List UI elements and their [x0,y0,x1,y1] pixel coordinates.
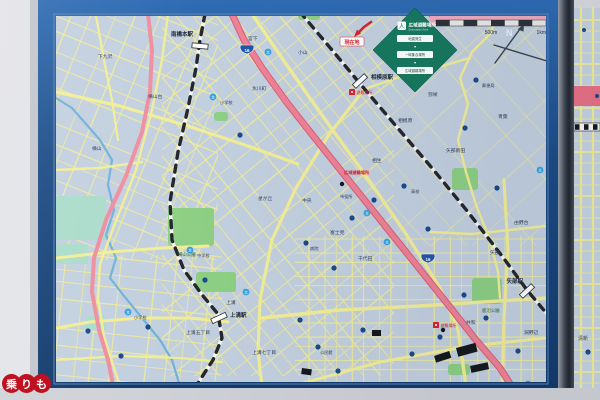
svg-text:上溝: 上溝 [226,299,236,306]
svg-text:横山公園: 横山公園 [178,251,196,258]
legend-step-2: 一時集合場所 [405,52,426,57]
legend-step-1: 地震発生 [408,36,422,41]
svg-text:文: 文 [126,309,130,314]
side-panel-district-label: 清新 [578,335,588,342]
svg-text:氷川町: 氷川町 [252,85,267,92]
you-are-here-label: 現在地 [344,39,359,46]
signboard-photo: 相模原駅矢部駅南橋本駅上溝駅1616文文文文文文文文文下九沢宮下小山氷川町横山台… [0,0,600,400]
svg-text:病院: 病院 [310,245,319,252]
svg-text:星が丘: 星が丘 [258,195,273,202]
svg-text:富士見: 富士見 [330,229,345,236]
svg-text:千代田: 千代田 [358,255,373,262]
legend-title: 広域避難場所 [409,22,437,29]
legend-subtitle: Evacuation Area [409,28,429,32]
svg-text:市役所: 市役所 [340,193,353,200]
svg-text:高校: 高校 [411,188,420,195]
svg-text:矢部新田: 矢部新田 [446,147,465,154]
evacuation-legend-diamond: 人 広域避難場所 Evacuation Area 地震発生 ▼ 一時集合場所 ▼… [373,8,457,92]
svg-text:避難場所: 避難場所 [357,89,373,95]
generated-map-layers: 相模原駅矢部駅南橋本駅上溝駅1616文文文文文文文文文下九沢宮下小山氷川町横山台… [0,0,600,400]
map-content: 相模原駅矢部駅南橋本駅上溝駅1616文文文文文文文文文下九沢宮下小山氷川町横山台… [0,0,600,400]
svg-text:公民館: 公民館 [320,349,333,356]
svg-text:青葉: 青葉 [498,113,508,120]
svg-text:矢部駅: 矢部駅 [506,277,523,285]
svg-text:鹿沼公園: 鹿沼公園 [482,307,500,314]
board-edge-gap [558,0,574,400]
svg-text:横山: 横山 [92,145,102,152]
svg-text:中学校: 中学校 [197,252,210,259]
svg-text:由野台: 由野台 [514,219,529,226]
svg-text:文: 文 [266,49,270,54]
svg-text:弥栄: 弥栄 [428,91,438,98]
legend-arrow-1: ▼ [413,45,416,49]
svg-text:横山台: 横山台 [148,93,163,100]
evacuation-person-glyph: 人 [399,23,405,30]
compass-label: N [506,28,513,38]
svg-text:相生: 相生 [372,157,382,164]
svg-text:共和: 共和 [466,319,476,326]
news-site-watermark: 乗 り も [2,374,51,393]
station-marker [192,43,208,49]
svg-text:中央: 中央 [302,197,312,204]
watermark-char-3: も [32,374,51,393]
scale-label-1km: 1km [537,30,546,36]
svg-text:文: 文 [538,167,542,172]
svg-text:宮下: 宮下 [248,35,258,42]
svg-text:上溝五丁目: 上溝五丁目 [186,329,210,336]
svg-text:南橋本駅: 南橋本駅 [171,30,194,38]
svg-text:矢部: 矢部 [490,249,500,256]
legend-diamond-shape [373,8,457,92]
svg-text:下九沢: 下九沢 [98,53,113,60]
svg-text:文: 文 [385,239,389,244]
svg-text:小山: 小山 [298,49,308,56]
svg-text:郵便局: 郵便局 [482,82,495,89]
second-panel [574,8,600,390]
svg-text:文: 文 [211,94,215,99]
svg-text:相模原: 相模原 [398,117,413,124]
svg-text:上溝七丁目: 上溝七丁目 [252,349,276,356]
legend-arrow-2: ▼ [413,61,416,65]
svg-text:16: 16 [425,257,431,262]
legend-step-3: 広域避難場所 [405,68,426,73]
svg-text:広域避難場所: 広域避難場所 [344,169,370,176]
svg-text:文: 文 [244,289,248,294]
svg-text:淵野辺: 淵野辺 [524,329,539,336]
svg-text:上溝駅: 上溝駅 [230,311,247,319]
svg-text:文: 文 [365,210,369,215]
svg-text:避難場所: 避難場所 [441,322,457,328]
svg-text:小学校: 小学校 [134,314,147,321]
svg-text:16: 16 [244,48,250,53]
map-board: 相模原駅矢部駅南橋本駅上溝駅1616文文文文文文文文文下九沢宮下小山氷川町横山台… [0,0,600,400]
scale-label-500m: 500m [485,30,498,36]
svg-text:小学校: 小学校 [220,99,233,106]
